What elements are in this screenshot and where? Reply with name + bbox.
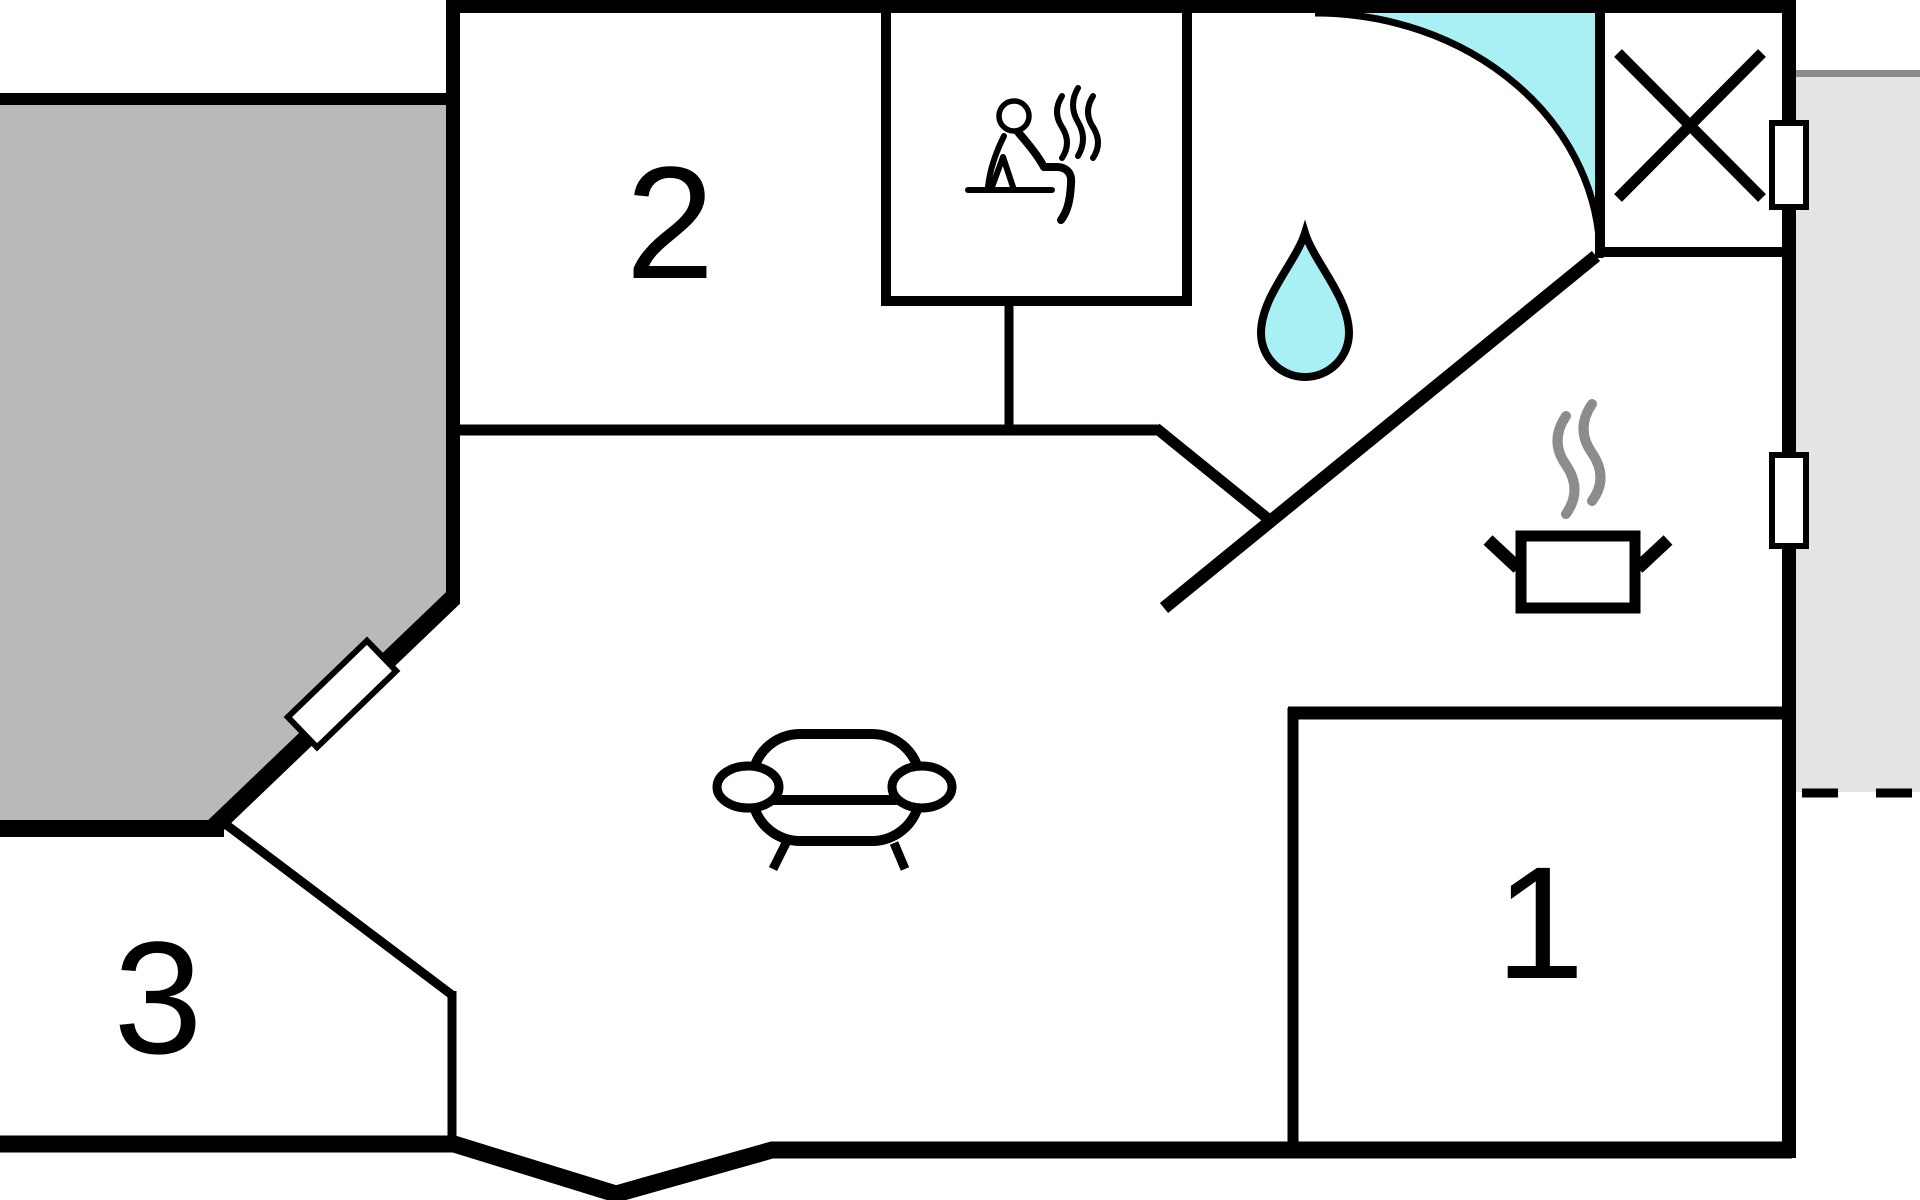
steam-icon [1558, 404, 1601, 514]
door-swing-icon [1315, 13, 1600, 258]
bottom-wall [0, 1144, 1792, 1194]
room-1-label: 1 [1496, 833, 1585, 1012]
sofa-armrest-right [892, 766, 952, 808]
terrace-area [0, 93, 460, 837]
window-icon [1772, 123, 1806, 207]
left-wall [446, 0, 460, 603]
water-drop-icon [1261, 233, 1349, 377]
hall-short-diagonal-wall [1156, 428, 1272, 522]
terrace-bottom-wall [0, 820, 224, 837]
top-wall [446, 0, 1796, 13]
pot-handle-right [1638, 540, 1668, 568]
right-exterior-edge [1796, 70, 1920, 77]
right-exterior-area [1796, 70, 1920, 793]
door-swing-fill [1315, 13, 1600, 258]
sofa-icon [717, 734, 952, 869]
floor-plan: 2 1 3 [0, 0, 1920, 1200]
room-3-label: 3 [114, 908, 203, 1087]
terrace-top-wall [0, 93, 453, 105]
room-2-label: 2 [626, 133, 715, 312]
crossed-box-icon [1596, 13, 1789, 257]
sauna-person-body [1018, 132, 1071, 220]
right-exterior-fill [1796, 75, 1920, 792]
sauna-cabin-walls [881, 13, 1192, 430]
pot-body [1521, 536, 1635, 608]
sofa-armrest-left [717, 766, 779, 808]
room3-divider-walls [220, 820, 452, 1144]
pot-handle-left [1488, 540, 1518, 568]
cooking-pot-icon [1488, 404, 1668, 608]
floor-plan-canvas: 2 1 3 [0, 0, 1920, 1200]
sofa-leg-right [894, 843, 905, 869]
steam-icon [1057, 88, 1098, 158]
window-icon [1772, 455, 1806, 546]
sauna-person-icon [968, 88, 1098, 220]
sofa-leg-left [773, 843, 786, 869]
terrace-fill [0, 93, 460, 830]
